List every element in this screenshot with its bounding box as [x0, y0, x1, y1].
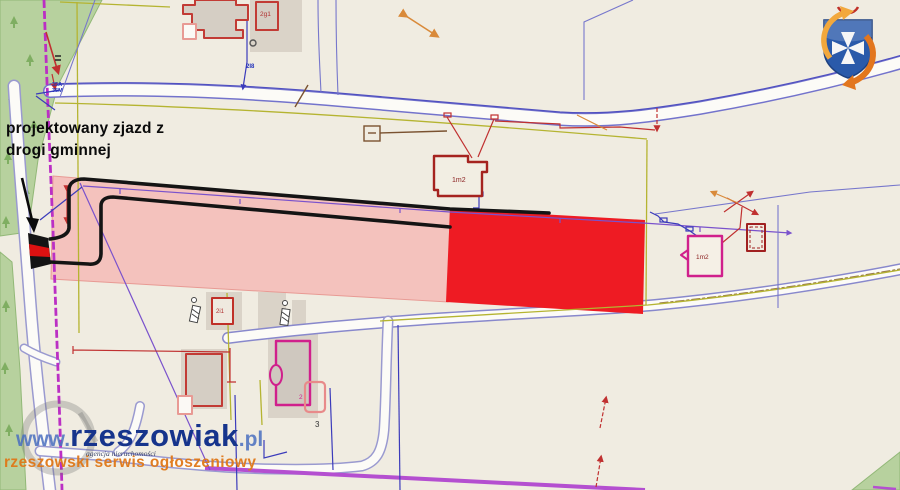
label-2i1: 2i1 [216, 309, 225, 315]
watermark: www. rzeszowiak .pl agencja nieruchomośc… [16, 418, 263, 454]
annotation-text: projektowany zjazd z drogi gminnej [6, 118, 164, 163]
watermark-www: www. [16, 428, 70, 452]
planned-exit-marker [28, 233, 51, 269]
watermark-tld: .pl [239, 428, 264, 452]
label-1m2-center: 1m2 [452, 177, 466, 184]
annotation-line1: projektowany zjazd z [6, 118, 164, 140]
map-screenshot: { "annotation": { "line1": "projektowany… [0, 0, 900, 490]
building-annex-2 [178, 396, 192, 414]
building-annex-1 [183, 24, 196, 39]
annotation-line2: drogi gminnej [6, 140, 164, 162]
label-1m2-right: 1m2 [696, 254, 709, 261]
cadastral-map: 2g1 1m2 1m2 2i1 2 3 2I8 35A 35M [0, 0, 900, 490]
label-3: 3 [315, 420, 320, 429]
label-2g1: 2g1 [260, 11, 271, 18]
label-2i8: 2I8 [246, 64, 255, 70]
parcel-red-highlight [446, 209, 645, 314]
building-1m2-center [434, 156, 487, 196]
label-35m: 35M [52, 88, 63, 94]
label-2: 2 [299, 394, 303, 401]
watermark-subtitle: rzeszowski serwis ogłoszeniowy [4, 454, 256, 472]
